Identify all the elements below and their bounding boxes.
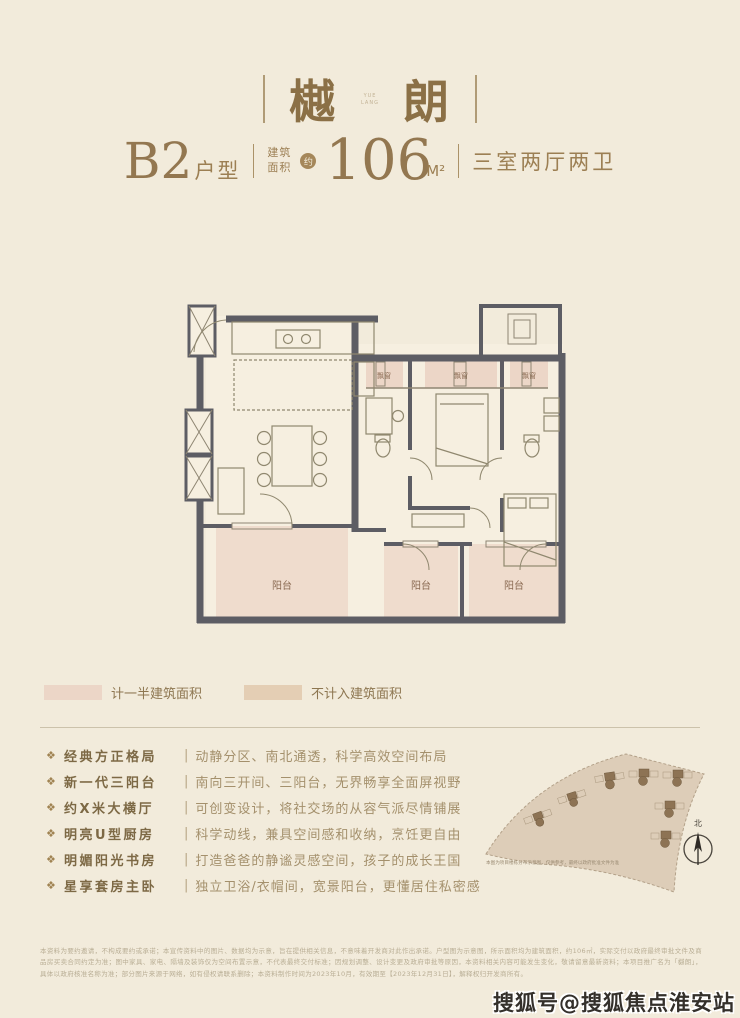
feature-desc: 科学动线，兼具空间感和收纳，烹饪更自由 — [195, 824, 461, 843]
feature-desc: 打造爸爸的静谧灵感空间，孩子的成长王国 — [195, 850, 461, 869]
flower-bullet-icon: ❖ — [46, 879, 64, 892]
approx-badge: 约 — [300, 153, 316, 169]
promo-page: 樾 YUE LANG 朗 B2 户型 建筑 面积 约 106 M² 三室两厅两卫 — [0, 0, 740, 1018]
spec-divider — [253, 144, 254, 178]
legend-label-half: 计一半建筑面积 — [111, 683, 202, 702]
section-divider — [40, 727, 700, 728]
flower-bullet-icon: ❖ — [46, 853, 64, 866]
disclaimer-text: 本资料为要约邀请，不构成要约或承诺；本宣传资料中的图片、数据均为示意，旨在提供相… — [40, 946, 702, 980]
feature-row: ❖ 约X米大横厅 | 可创变设计，将社交场的从容气派尽情铺展 — [46, 798, 481, 817]
feature-row: ❖ 经典方正格局 | 动静分区、南北通透，科学高效空间布局 — [46, 746, 481, 765]
feature-row: ❖ 明亮U型厨房 | 科学动线，兼具空间感和收纳，烹饪更自由 — [46, 824, 481, 843]
area-unit: M² — [426, 162, 445, 180]
legend: 计一半建筑面积 不计入建筑面积 — [44, 683, 430, 702]
brand-mark: YUE LANG — [361, 93, 379, 106]
features-list: ❖ 经典方正格局 | 动静分区、南北通透，科学高效空间布局 ❖ 新一代三阳台 |… — [46, 746, 481, 895]
feature-title: 明亮U型厨房 — [64, 824, 182, 843]
legend-item-excluded: 不计入建筑面积 — [244, 683, 402, 702]
unit-type: B2 — [124, 136, 193, 186]
feature-desc: 动静分区、南北通透，科学高效空间布局 — [195, 746, 447, 765]
brand-char-left: 樾 — [289, 66, 337, 132]
feature-desc: 南向三开间、三阳台，无界畅享全面屏视野 — [195, 772, 461, 791]
feature-desc: 可创变设计，将社交场的从容气派尽情铺展 — [195, 798, 461, 817]
feature-row: ❖ 新一代三阳台 | 南向三开间、三阳台，无界畅享全面屏视野 — [46, 772, 481, 791]
title-divider-left-icon — [263, 75, 265, 123]
legend-label-excluded: 不计入建筑面积 — [311, 683, 402, 702]
legend-swatch-excluded — [244, 685, 302, 700]
watermark: 搜狐号@搜狐焦点淮安站 — [493, 987, 735, 1017]
feature-separator: | — [184, 800, 188, 815]
balcony-label: 阳台 — [272, 579, 292, 592]
feature-title: 明媚阳光书房 — [64, 850, 182, 869]
north-label: 北 — [694, 819, 702, 828]
feature-row: ❖ 星享套房主卧 | 独立卫浴/衣帽间，宽景阳台，更懂居住私密感 — [46, 876, 481, 895]
feature-row: ❖ 明媚阳光书房 | 打造爸爸的静谧灵感空间，孩子的成长王国 — [46, 850, 481, 869]
site-boundary — [486, 754, 704, 892]
flower-bullet-icon: ❖ — [46, 801, 64, 814]
site-plan-caption: 本图为项目楼栋分布示意图，仅供参考，最终以政府批准文件为准 — [486, 859, 620, 866]
feature-title: 新一代三阳台 — [64, 772, 182, 791]
rooms-label: 三室两厅两卫 — [472, 146, 616, 176]
floor-plan: 飘窗 飘窗 飘窗 阳台 阳台 阳台 — [170, 298, 570, 633]
bay-window-label: 飘窗 — [377, 371, 391, 380]
feature-title: 约X米大横厅 — [64, 798, 182, 817]
brand-mark-top: YUE — [364, 93, 377, 99]
feature-separator: | — [184, 878, 188, 893]
spec-divider — [458, 144, 459, 178]
unit-type-suffix: 户型 — [194, 155, 240, 185]
flower-bullet-icon: ❖ — [46, 749, 64, 762]
legend-swatch-half — [44, 685, 102, 700]
north-compass-icon: 北 — [676, 816, 720, 874]
feature-separator: | — [184, 774, 188, 789]
unit-spec-row: B2 户型 建筑 面积 约 106 M² 三室两厅两卫 — [0, 136, 740, 186]
balcony-label: 阳台 — [504, 579, 524, 592]
area-prefix: 建筑 面积 — [267, 146, 291, 176]
flower-bullet-icon: ❖ — [46, 775, 64, 788]
feature-separator: | — [184, 826, 188, 841]
feature-separator: | — [184, 748, 188, 763]
balcony-area — [216, 526, 348, 618]
brand-title: 樾 YUE LANG 朗 — [0, 66, 740, 132]
bay-window-label: 飘窗 — [522, 371, 536, 380]
balcony-label: 阳台 — [411, 579, 431, 592]
feature-title: 星享套房主卧 — [64, 876, 182, 895]
area-value: 106 — [325, 136, 432, 186]
title-divider-right-icon — [475, 75, 477, 123]
feature-separator: | — [184, 852, 188, 867]
brand-char-right: 朗 — [403, 66, 451, 132]
bay-window-label: 飘窗 — [454, 371, 468, 380]
area-prefix-line2: 面积 — [267, 161, 291, 176]
feature-desc: 独立卫浴/衣帽间，宽景阳台，更懂居住私密感 — [195, 876, 480, 895]
brand-mark-bottom: LANG — [361, 100, 379, 106]
feature-title: 经典方正格局 — [64, 746, 182, 765]
legend-item-half-area: 计一半建筑面积 — [44, 683, 202, 702]
flower-bullet-icon: ❖ — [46, 827, 64, 840]
area-prefix-line1: 建筑 — [267, 146, 291, 161]
